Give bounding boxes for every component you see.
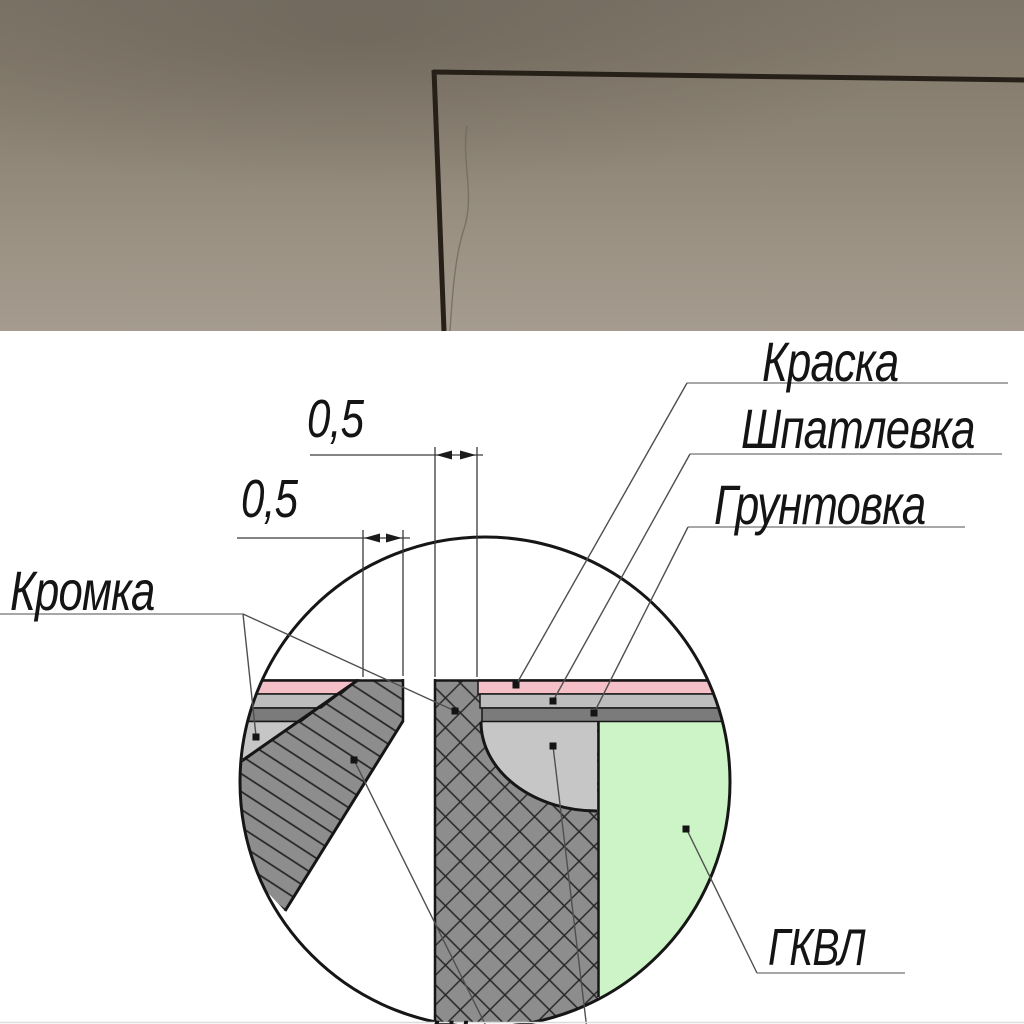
label-putty: Шпатлевка: [741, 405, 975, 452]
label-edge: Кромка: [10, 567, 155, 614]
screenshot-root: Краска Шпатлевка Грунтовка Кромка ГКВЛ 0…: [0, 0, 1024, 1024]
gkvl-board: [599, 722, 739, 1024]
dimension-value-lower: 0,5: [241, 477, 297, 522]
primer-layer-right: [482, 708, 734, 722]
plaster-crack: [450, 126, 468, 331]
label-gkvl: ГКВЛ: [768, 927, 865, 971]
label-bottom-clipped: Шпатлевка: [428, 1016, 662, 1024]
dimension-lower: [237, 530, 410, 677]
label-primer: Грунтовка: [714, 481, 925, 528]
dimension-upper: [310, 447, 483, 677]
ceiling-joint-line: [433, 70, 1024, 331]
section-content: [226, 679, 739, 1024]
dimension-value-upper: 0,5: [307, 397, 363, 442]
putty-layer-right: [480, 694, 732, 708]
label-paint: Краска: [762, 338, 898, 385]
